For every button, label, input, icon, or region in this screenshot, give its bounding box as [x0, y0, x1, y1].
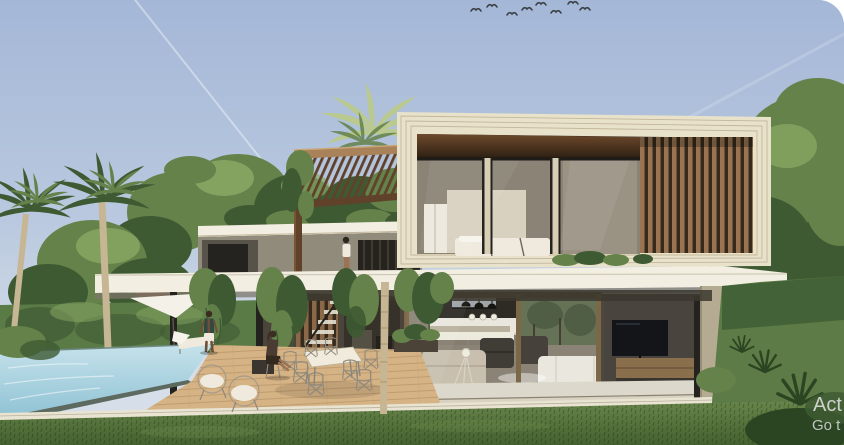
- architectural-render: Act Go t: [0, 0, 844, 445]
- tv: [612, 320, 668, 356]
- upper-floor-box: [397, 112, 771, 268]
- activation-watermark: Act Go t: [812, 394, 842, 434]
- activation-watermark-line1: Act: [813, 394, 842, 416]
- render-viewport: Act Go t: [0, 0, 844, 445]
- activation-watermark-line2: Go t: [812, 417, 841, 434]
- living-room: [398, 286, 730, 410]
- bedroom-interior: [417, 157, 640, 256]
- wood-slat-screen: [640, 137, 753, 253]
- wood-soffit: [417, 134, 640, 159]
